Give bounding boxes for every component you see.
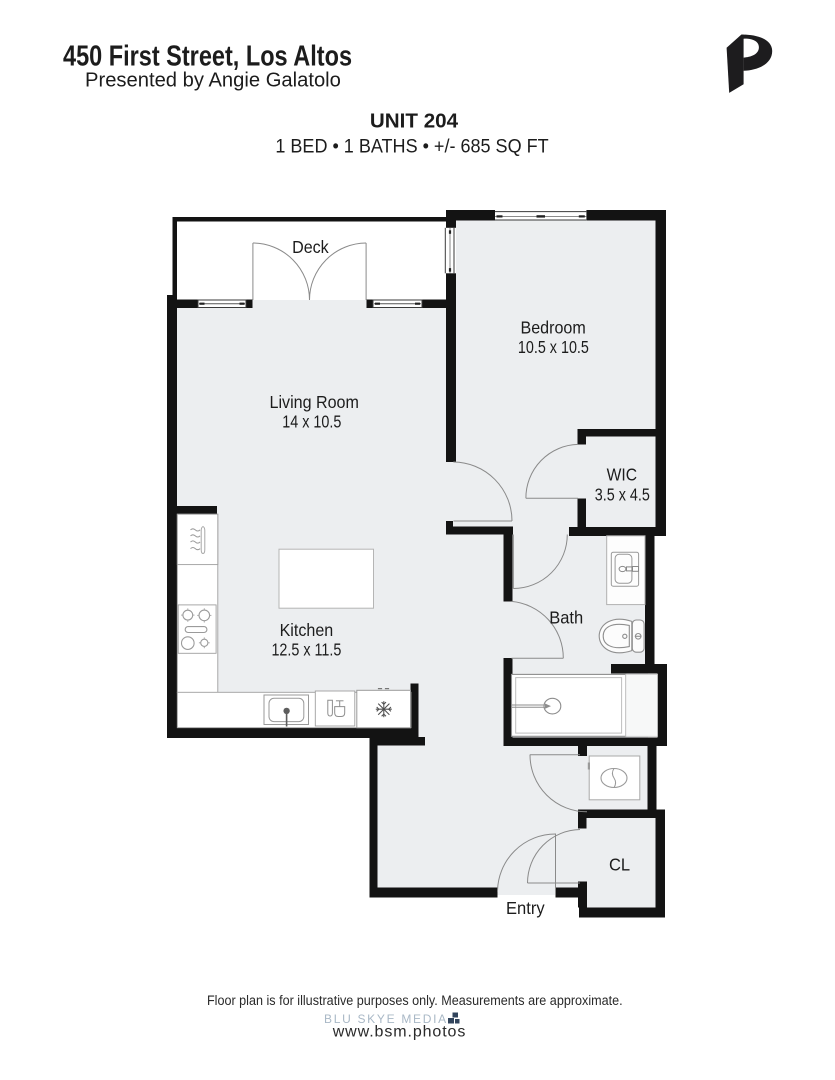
svg-text:3.5 x 4.5: 3.5 x 4.5	[595, 486, 650, 505]
svg-text:Living Room: Living Room	[269, 392, 358, 412]
svg-text:WIC: WIC	[607, 465, 637, 485]
svg-text:UNIT 204: UNIT 204	[370, 109, 459, 132]
svg-text:10.5 x 10.5: 10.5 x 10.5	[518, 339, 589, 358]
svg-text:Bath: Bath	[549, 608, 583, 627]
svg-text:14 x 10.5: 14 x 10.5	[282, 413, 341, 432]
svg-text:CL: CL	[609, 855, 630, 874]
svg-text:1 BED • 1 BATHS • +/- 685 SQ F: 1 BED • 1 BATHS • +/- 685 SQ FT	[275, 135, 548, 157]
svg-text:Kitchen: Kitchen	[280, 620, 334, 640]
svg-text:Deck: Deck	[292, 237, 329, 257]
svg-text:Presented by Angie Galatolo: Presented by Angie Galatolo	[85, 70, 341, 92]
svg-text:Bedroom: Bedroom	[520, 318, 585, 338]
svg-text:www.bsm.photos: www.bsm.photos	[332, 1023, 467, 1040]
svg-text:Entry: Entry	[506, 899, 545, 918]
svg-text:Floor plan is for illustrative: Floor plan is for illustrative purposes …	[207, 993, 623, 1009]
svg-text:450 First Street, Los Altos: 450 First Street, Los Altos	[63, 39, 352, 72]
svg-text:12.5 x 11.5: 12.5 x 11.5	[271, 642, 341, 661]
